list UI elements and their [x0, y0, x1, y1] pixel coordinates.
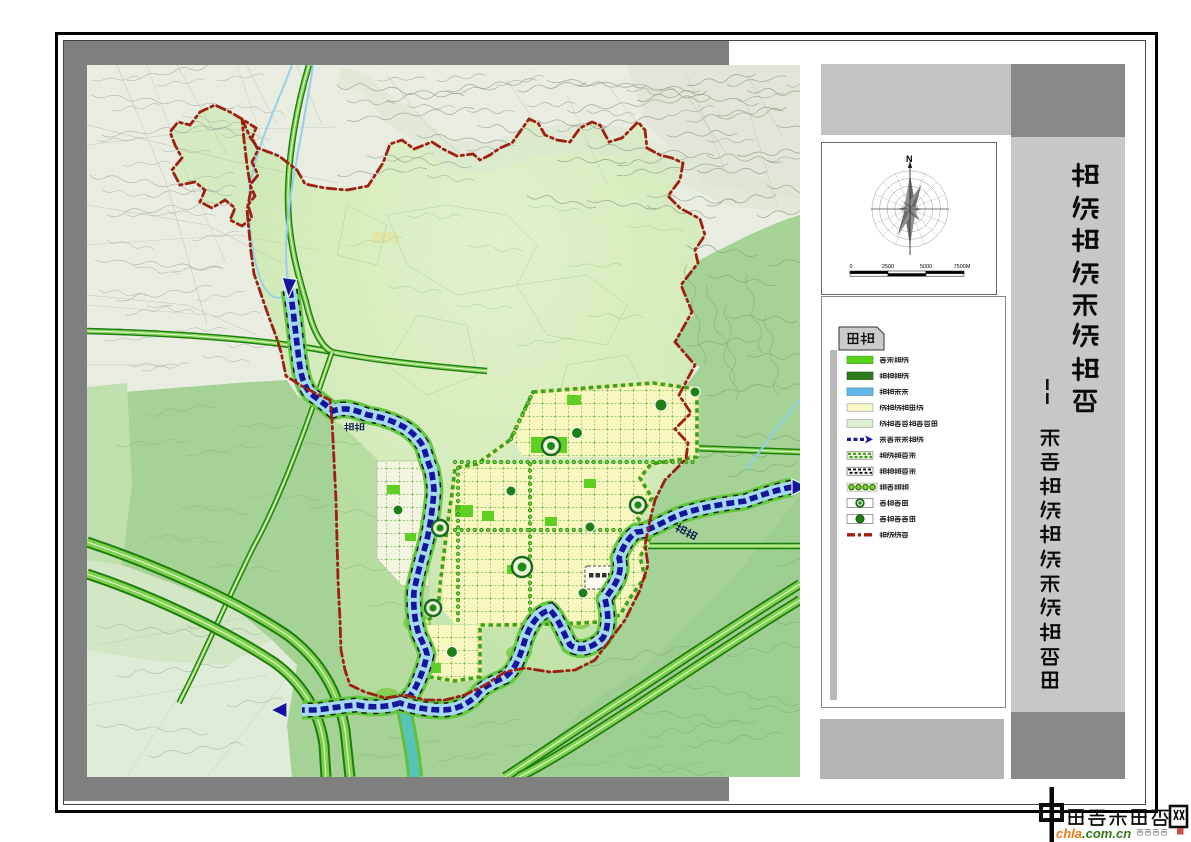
svg-text:7500M: 7500M	[954, 264, 971, 270]
svg-text:5000: 5000	[920, 264, 932, 270]
svg-text:N: N	[906, 154, 913, 164]
svg-text:chla.com.cn: chla.com.cn	[1056, 826, 1131, 841]
svg-text:0: 0	[849, 264, 852, 270]
svg-text:2500: 2500	[882, 264, 894, 270]
